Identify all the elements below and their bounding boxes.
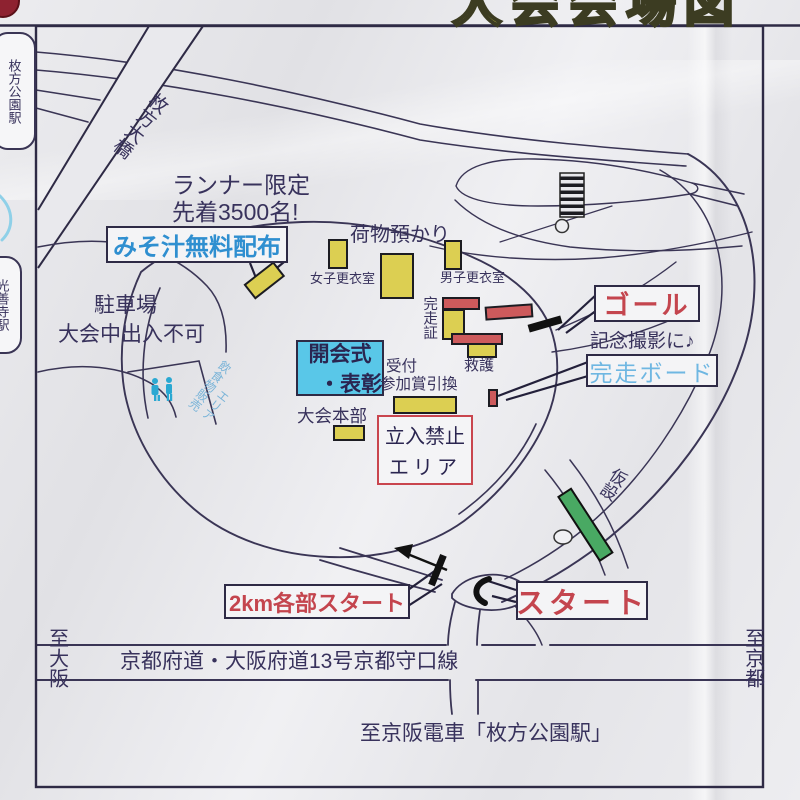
restroom-icon [152,377,173,401]
miso-label: みそ汁無料配布 [113,227,281,262]
finisher-cert-label: 完走証 [420,296,437,340]
station-balloon-label: 光善寺駅 [0,279,12,331]
to-osaka-label: 至大阪 [44,628,68,688]
parking-label: 駐車場 [94,294,157,319]
start-label: スタート [516,580,648,622]
women-changing-room [329,240,347,268]
first-aid-label: 救護 [464,357,494,375]
stairs-symbol [560,173,584,217]
men-changing-label: 男子更衣室 [440,270,505,285]
road-network [0,0,800,800]
luggage-label: 荷物預かり [350,224,450,248]
hq-label: 大会本部 [297,406,367,427]
no-entry-line1: 立入禁止 [385,420,465,449]
finish-board-label: 完走ボード [590,354,715,388]
miso-stand [245,263,284,299]
finish-board-callout: 完走ボード [586,354,718,387]
start-callout: スタート [516,581,648,620]
venue-map: 大会会場図 枚方公園駅 光善寺駅 枚方大橋 ランナー限定 先着3500名! みそ… [0,0,800,800]
start-2km-callout: 2km各部スタート [224,584,410,619]
goal-label: ゴール [603,285,690,322]
miso-callout: みそ汁無料配布 [106,226,288,263]
station-balloon-hirakatakoen: 枚方公園駅 [0,32,36,150]
parking-note: 大会中出入不可 [58,323,205,348]
start-2km-label: 2km各部スタート [229,586,405,618]
reception-line2: 参加賞引換 [380,376,458,394]
no-entry-line2: エリア [389,451,461,480]
pond [554,530,572,544]
goal-chute-bar [486,304,533,319]
runner-note-line2: 先着3500名! [172,199,310,226]
opening-ceremony-box: 開会式 ・表彰 [296,340,384,396]
reception-line1: 受付 [386,358,458,376]
station-balloon-kozenji: 光善寺駅 [0,256,22,354]
goal-callout: ゴール [594,285,700,322]
opening-line2: ・表彰 [319,368,382,398]
goal-chute-bar [443,298,479,309]
roundabout-circle [556,220,569,233]
station-balloon-label: 枚方公園駅 [5,59,24,124]
start-line-2km [428,554,446,586]
temporary-toilets [558,489,612,561]
reception-booth [394,397,456,413]
no-entry-box: 立入禁止 エリア [377,415,473,485]
luggage-building [381,254,413,298]
finish-board-marker [489,390,497,406]
to-kyoto-label: 至京都 [740,628,764,688]
page-title: 大会会場図 [452,0,742,36]
prefectural-road-label: 京都府道・大阪府道13号京都守口線 [120,650,458,675]
women-changing-label: 女子更衣室 [310,271,375,286]
station-direction-label: 至京阪電車「枚方公園駅」 [360,722,612,747]
start-line-main [476,579,489,603]
opening-line1: 開会式 [309,338,372,368]
reception-label: 受付 参加賞引換 [386,358,458,395]
runner-note-line1: ランナー限定 [172,172,310,199]
hq-booth [334,426,364,440]
runner-note: ランナー限定 先着3500名! [172,172,310,226]
photo-note: 記念撮影に♪ [590,331,695,353]
goal-chute-bar [452,334,502,344]
